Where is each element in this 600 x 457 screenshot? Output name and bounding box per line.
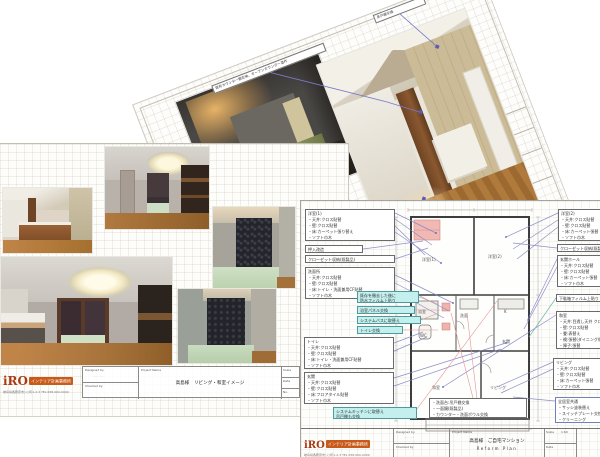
annotation-box-shoe-cabinet: 下駄箱フィルム上貼り — [556, 294, 600, 302]
designer-signature: ····· ····· — [404, 435, 415, 439]
annotation-title: 下駄箱フィルム上貼り — [559, 296, 600, 302]
annotation-box-all-rooms: 全居室共通 ・サッシ塗装替え・スイッチプレート交換・クリーニング — [555, 397, 600, 423]
designed-by-cell: Designed by ····· ····· Checked by — [83, 367, 138, 399]
r2-cabinet-shelf2 — [181, 195, 209, 198]
r2-floor — [105, 213, 209, 229]
r4-doorway-tatami — [61, 335, 105, 344]
r2-cabinet-shelf — [181, 178, 209, 182]
r4-doorway-right — [85, 301, 106, 338]
r1-floor — [3, 240, 92, 253]
iro-logo: iROインテリア計画事務所 岐阜県各務原市○○町1-2-3 TEL 058-00… — [304, 433, 370, 457]
r5-wood-edge — [252, 351, 276, 363]
designer-signature: ····· ····· — [93, 374, 104, 378]
r4-doorway-left — [61, 301, 82, 338]
r2-cabinet — [181, 165, 209, 216]
scale-label: Scale — [283, 368, 291, 372]
r2-left-door — [120, 170, 136, 215]
highlight-box-toilet: トイレ交換 — [357, 326, 403, 334]
r5-tatami — [188, 345, 255, 363]
highlight-box-bath-panel: 浴室パネル交換 — [357, 306, 415, 314]
right-title-block: Designed by ····· ····· Checked by Proje… — [393, 429, 600, 457]
date-label: Date — [546, 445, 553, 449]
right-document: 洋室(1) 洋室(2) 洗面 浴室 WC K リビング 和室 玄関 — [300, 200, 600, 457]
plan-label-kitchen: K — [504, 309, 507, 314]
project-title: 高島様 ご自宅マンション — [450, 438, 544, 444]
r3-dark-panel — [236, 218, 272, 268]
iro-logo: iROインテリア計画事務所 岐阜県各務原市○○町1-2-3 TEL 058-00… — [3, 370, 73, 394]
r5-dark-panel — [207, 298, 244, 345]
left-title-block: Designed by ····· ····· Checked by Proje… — [82, 366, 300, 398]
left-document: iROインテリア計画事務所 岐阜県各務原市○○町1-2-3 TEL 058-00… — [0, 143, 349, 417]
scale-date-cell: Scale 1:60 Date — [544, 429, 576, 457]
project-name-cell: Project Name 高島様 リビング・和室イメージ — [138, 367, 281, 399]
empty-cell — [576, 429, 600, 457]
plan-label-yoshitsu2: 洋室(2) — [488, 253, 502, 259]
annotation-lines: ・天井:クロス貼替・壁:クロス貼替・床:カーペット張替・ソフト巾木 — [556, 366, 600, 390]
scale-label: Scale — [546, 430, 554, 434]
cell-divider — [394, 443, 449, 444]
annotation-title: クローゼット収納(既製品) — [560, 246, 600, 252]
project-title: 高島様 リビング・和室イメージ — [139, 380, 281, 386]
logo-banner: インテリア計画事務所 — [29, 377, 73, 385]
logo-address: 岐阜県各務原市○○町1-2-3 TEL 058-000-0000 — [304, 453, 370, 457]
render-alcove-1 — [212, 206, 296, 289]
logo-address: 岐阜県各務原市○○町1-2-3 TEL 058-000-0000 — [3, 390, 73, 394]
plan-label-wash: 洗面 — [460, 312, 468, 318]
highlight-box-waterproof: 既存を撤去した後に防水フィルム上貼り — [357, 291, 419, 303]
cell-divider — [282, 377, 301, 378]
annotation-box-living: リビング ・天井:クロス貼替・壁:クロス貼替・床:カーペット張替・ソフト巾木 — [553, 358, 600, 390]
render-living-hall — [104, 146, 210, 230]
annotation-box-yoshitsu2: 洋室(2) ・天井:クロス貼替・壁:クロス貼替・床:カーペット張替・ソフト巾木 — [558, 209, 600, 241]
annotation-lines: ・サッシ塗装替え・スイッチプレート交換・クリーニング — [558, 405, 600, 423]
plan-label-washitsu: 和室 — [432, 384, 440, 390]
logo-text: iRO — [304, 440, 325, 451]
highlight-lines: システムバスに取替え — [360, 318, 418, 324]
r2-alcove-tatami — [147, 203, 170, 213]
checked-by-label: Checked by — [396, 445, 414, 449]
annotation-box-entrance-hall: 玄関ホール ・天井:クロス貼替・壁:クロス貼替・床:カーペット張替・ソフト巾木 — [557, 255, 600, 287]
scale-date-cell: Scale Date No. — [281, 367, 301, 399]
logo-text: iRO — [3, 374, 28, 388]
annotation-lines: ・天井:クロス貼替・壁:クロス貼替・床:カーペット張り替え・ソフト巾木 — [308, 217, 392, 241]
highlight-lines: システムキッチンに取替え吊戸棚も交換 — [336, 409, 414, 419]
annotation-lines: ・天井:クロス貼替・壁:クロス貼替・床:フロアタイル貼替・ソフト巾木 — [307, 380, 391, 404]
project-subtitle: Reform Plan — [450, 446, 544, 451]
plan-label-entrance: 玄関 — [502, 338, 510, 344]
annotation-box-yoshitsu1: 洋室(1) ・天井:クロス貼替・壁:クロス貼替・床:カーペット張り替え・ソフト巾… — [305, 209, 395, 241]
designed-by-label: Designed by — [85, 368, 104, 372]
highlight-box-system-kitchen: システムキッチンに取替え吊戸棚も交換 — [333, 407, 417, 419]
highlight-lines: 浴室パネル交換 — [360, 308, 412, 314]
r3-tatami — [213, 267, 279, 288]
designed-by-label: Designed by — [396, 430, 415, 434]
annotation-box-vanity: ・洗面台:吊戸棚交換・一面鏡(既製品)・カウンター・洗面ボウル交換 — [429, 398, 527, 418]
project-name-label: Project Name — [141, 368, 161, 372]
annotation-box-closet-right: クローゼット収納(既製品) — [557, 244, 600, 252]
render-living-wide — [0, 256, 173, 366]
annotation-box-genkan: 玄関 ・天井:クロス貼替・壁:クロス貼替・床:フロアタイル貼替・ソフト巾木 — [304, 372, 394, 404]
checked-by-label: Checked by — [85, 384, 103, 388]
date-label: Date — [283, 379, 290, 383]
annotation-title: 押入改造 — [308, 247, 360, 253]
highlight-lines: 既存を撤去した後に防水フィルム上貼り — [360, 293, 416, 303]
logo-banner: インテリア計画事務所 — [326, 440, 370, 448]
annotation-lines: ・天井:クロス貼替・壁:クロス貼替・床:カーペット張替・ソフト巾木 — [561, 217, 600, 241]
plan-label-wc: WC — [420, 333, 427, 338]
cell-divider — [545, 443, 576, 444]
render-alcove-2 — [177, 288, 277, 364]
annotation-lines: ・天井:クロス貼替・壁:クロス貼替・床:トイレ・洗面兼用CF貼替・ソフト巾木 — [307, 345, 391, 369]
annotation-box-washitsu: 和室 ・天井:目透し天井 クロス貼替・壁:クロス貼替・畳:表替え・襖:張替(ダイ… — [556, 311, 600, 349]
annotation-title: クローゼット収納(既製品) — [308, 257, 392, 263]
annotation-box-toilet-room: トイレ ・天井:クロス貼替・壁:クロス貼替・床:トイレ・洗面兼用CF貼替・ソフト… — [304, 337, 394, 369]
scale-value: 1:60 — [561, 430, 568, 434]
render-kitchen-counter — [2, 187, 93, 254]
annotation-box-oshiire: 押入改造 — [305, 245, 363, 253]
annotation-lines: ・天井:クロス貼替・壁:クロス貼替・床:カーペット張替・ソフト巾木 — [560, 263, 600, 287]
cell-divider — [282, 388, 301, 389]
plan-label-bath: 浴室 — [418, 308, 426, 314]
collage-stage: 既存カウンター撤去後、オープンカウンター造作 吊戸棚交換 カウンター下は収納 — [0, 0, 600, 457]
r4-kitchen-dark — [1, 328, 45, 343]
highlight-lines: トイレ交換 — [360, 328, 400, 334]
no-label: No. — [283, 390, 288, 394]
plan-label-living: リビング — [490, 384, 506, 390]
annotation-lines: ・洗面台:吊戸棚交換・一面鏡(既製品)・カウンター・洗面ボウル交換 — [432, 400, 524, 418]
plan-label-yoshitsu1: 洋室(1) — [422, 256, 436, 262]
r4-media-shelf — [138, 313, 172, 319]
highlight-box-system-bath: システムバスに取替え — [357, 316, 421, 324]
project-name-cell: Project Name 高島様 ご自宅マンション Reform Plan — [449, 429, 544, 457]
r4-ceiling-light — [66, 266, 134, 298]
annotation-lines: ・天井:目透し天井 クロス貼替・壁:クロス貼替・畳:表替え・襖:張替(ダイニング… — [559, 319, 600, 349]
r4-floor — [1, 343, 172, 365]
annotation-box-closet-left: クローゼット収納(既製品) — [305, 255, 395, 263]
designed-by-cell: Designed by ····· ····· Checked by — [393, 429, 449, 457]
project-name-label: Project Name — [452, 430, 472, 434]
r3-wood-edge — [277, 277, 295, 288]
cell-divider — [83, 382, 138, 383]
